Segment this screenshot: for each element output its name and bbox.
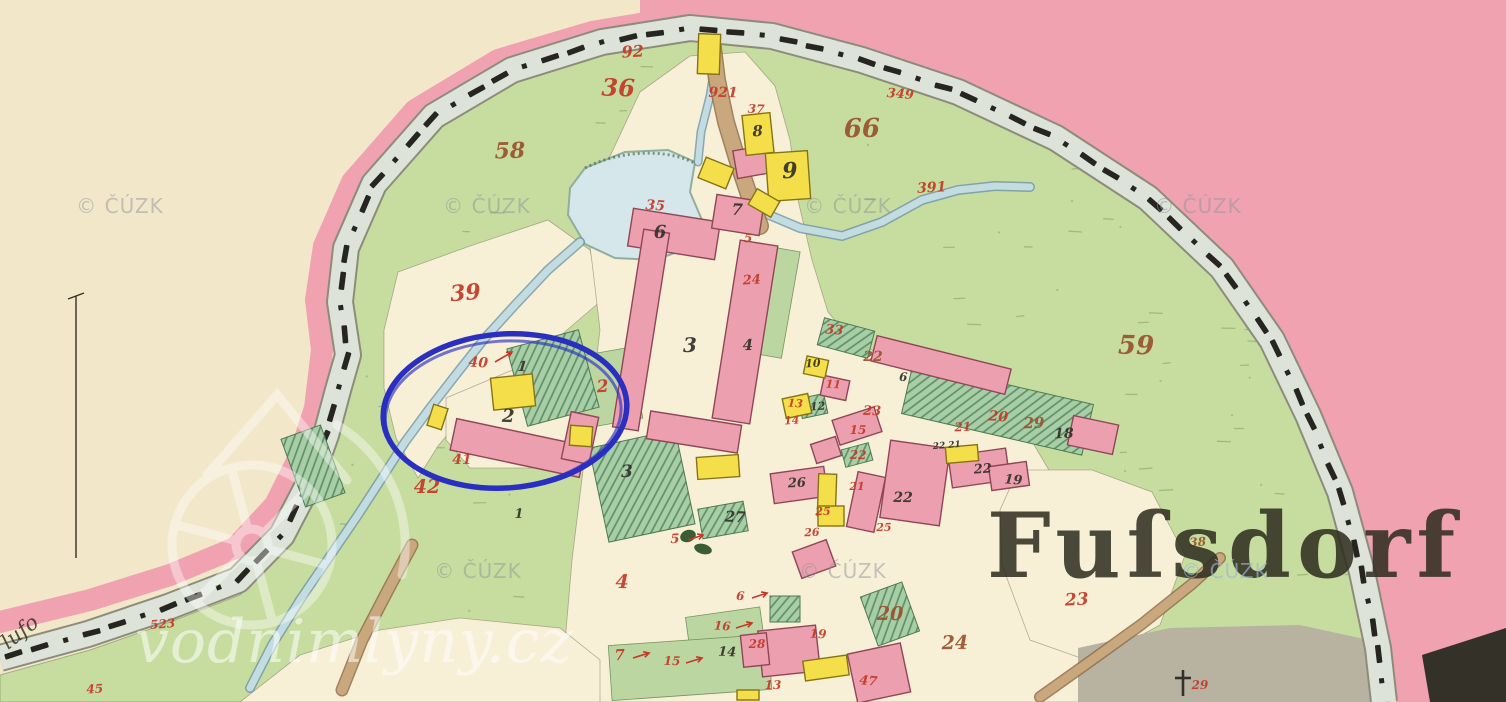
grass-mark [998,231,1000,233]
grass-mark [1159,380,1161,382]
parcel-number: 22 [862,349,883,365]
parcel-number: 35 [645,197,666,214]
grass-mark [1149,313,1163,314]
parcel-number: 45 [86,682,104,697]
parcel-number: 13 [765,678,782,692]
parcel-number: 25 [814,505,830,518]
parcel-number: 16 [713,618,731,633]
cuzk-watermark: © ČÚZK [434,559,521,583]
parcel-number: 24 [941,632,969,654]
cadastral-map: 9236921373496658391355243940241425933222… [0,0,1506,702]
parcel-number: 33 [825,322,844,338]
grass-mark [953,298,965,299]
house-number: 7 [731,200,743,220]
grass-mark [1071,200,1073,202]
parcel-number: 29 [1022,414,1045,432]
parcel-number: 47 [859,673,878,690]
building-masonry [847,643,910,702]
grass-mark [1163,363,1171,364]
cuzk-watermark: © ČÚZK [804,194,891,218]
parcel-number: 14 [784,413,800,427]
parcel-number: 19 [810,627,828,642]
house-number: 6 [654,222,667,243]
parcel-number: 15 [850,423,867,437]
parcel-number: 21 [848,480,864,493]
house-number: 6 [899,370,909,385]
grass-mark [366,375,368,377]
house-number: 22 [972,461,992,477]
grass-mark [1103,219,1114,220]
building-masonry [880,440,950,526]
house-number: 18 [1054,426,1074,442]
parcel-number: 37 [748,102,766,117]
grass-mark [1231,414,1233,416]
house-number: 3 [621,462,634,482]
house-number: 26 [787,476,807,492]
parcel-number: 15 [664,654,681,668]
house-number: 4 [742,336,753,354]
parcel-number: 349 [886,86,914,103]
parcel-number: 39 [449,279,482,307]
parcel-number: 41 [452,452,472,468]
cuzk-watermark: © ČÚZK [443,194,530,218]
grass-mark [867,144,869,146]
grass-mark [508,493,510,495]
fence-post [1379,678,1385,684]
house-number: 9 [782,158,798,184]
fence-post [338,305,344,311]
parcel-number: 92 [621,41,644,61]
parcel-number: 24 [741,272,761,288]
building-wood [569,425,592,446]
parcel-number: 66 [844,114,881,145]
parcel-number: 26 [803,526,820,540]
grass-mark [1119,226,1121,228]
fence-post [759,32,764,37]
parcel-number: 4 [615,571,629,593]
building-wood [696,455,739,480]
parcel-number: 22 [849,448,867,463]
parcel-number: 5 [670,532,679,547]
building-wood [697,34,720,75]
house-number: 10 [805,357,821,371]
grass-mark [1069,231,1082,232]
grass-mark [1247,341,1256,342]
map-canvas[interactable]: 9236921373496658391355243940241425933222… [0,0,1506,702]
parcel-number: 21 [953,420,971,435]
house-number: 27 [723,508,746,527]
parcel-number: 11 [825,377,841,391]
house-number: 1 [514,507,523,522]
parcel-number: 25 [875,521,892,534]
cuzk-watermark: © ČÚZK [76,194,163,218]
building-wood [490,374,535,410]
house-number: 12 [810,399,827,413]
house-number: 19 [1004,472,1023,488]
site-watermark-text: vodnimlyny.cz [135,607,573,677]
parcel-number: 29 [1191,678,1210,692]
fence-post [679,26,685,32]
parcel-number: 59 [1118,331,1155,362]
building-wood [737,690,759,700]
parcel-number: 40 [468,354,489,371]
grass-mark [351,464,353,466]
parcel-number: 20 [876,603,904,625]
grass-mark [1056,289,1058,291]
parcel-number: 36 [601,73,635,103]
cuzk-watermark: © ČÚZK [1181,559,1268,583]
house-number: 3 [683,333,697,357]
house-number: 1 [517,359,528,376]
cuzk-watermark: © ČÚZK [799,559,886,583]
parcel-number: 921 [708,85,738,102]
grass-mark [1139,468,1152,469]
house-number: 8 [752,122,764,141]
parcel-number: 58 [494,138,525,165]
house-number: 14 [718,645,737,661]
grass-mark [1249,377,1251,379]
garden-parcel [770,596,800,622]
grass-mark [513,596,524,597]
parcel-number: 2 [595,377,609,398]
cuzk-watermark: © ČÚZK [1154,194,1241,218]
house-number: 22 [892,490,913,506]
grass-mark [1124,470,1126,472]
grass-mark [1260,484,1262,486]
parcel-number: 6 [736,589,746,604]
parcel-number: 23 [862,404,882,420]
parcel-number: 28 [748,637,766,651]
parcel-number: 13 [787,397,803,411]
parcel-number: 5 [744,231,753,245]
parcel-number: 391 [917,179,947,197]
parcel-number: 7 [614,646,626,664]
parcel-number: 20 [987,408,1009,425]
grass-mark [1159,490,1173,491]
house-number: 2 [501,406,515,428]
place-label: Fuſsdorf [987,493,1461,599]
